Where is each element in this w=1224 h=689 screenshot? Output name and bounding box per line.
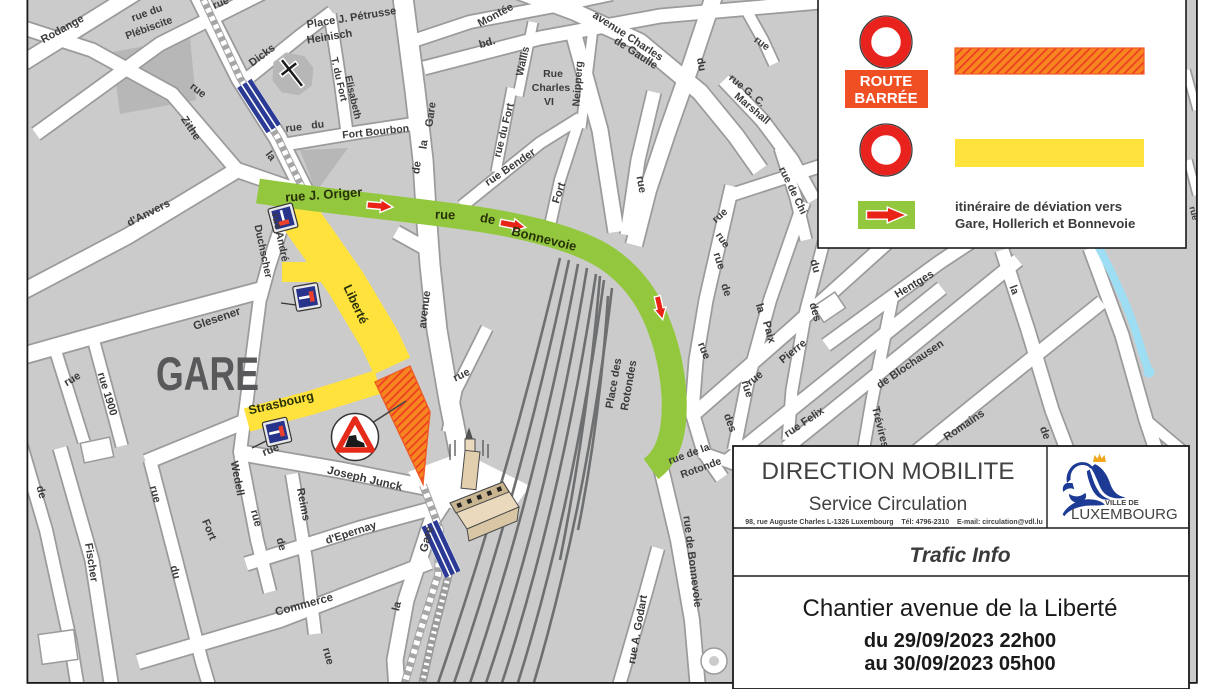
svg-text:rue: rue bbox=[285, 121, 303, 135]
svg-text:Trafic Info: Trafic Info bbox=[909, 544, 1010, 567]
svg-text:98, rue Auguste Charles L-1326: 98, rue Auguste Charles L-1326 Luxembour… bbox=[745, 519, 1043, 526]
svg-text:DIRECTION MOBILITE: DIRECTION MOBILITE bbox=[762, 458, 1015, 485]
svg-text:VI: VI bbox=[544, 96, 554, 108]
svg-text:Service Circulation: Service Circulation bbox=[809, 494, 967, 515]
svg-text:LUXEMBOURG: LUXEMBOURG bbox=[1071, 506, 1178, 523]
svg-text:Charles: Charles bbox=[532, 82, 571, 94]
svg-text:Rue: Rue bbox=[543, 68, 563, 80]
svg-text:Gare, Hollerich et Bonnevoie: Gare, Hollerich et Bonnevoie bbox=[955, 216, 1135, 231]
svg-text:de: de bbox=[479, 210, 497, 227]
svg-text:itinéraire de déviation vers: itinéraire de déviation vers bbox=[955, 199, 1122, 214]
svg-text:Chantier avenue de la Liberté: Chantier avenue de la Liberté bbox=[803, 595, 1118, 622]
svg-text:de: de bbox=[410, 160, 424, 174]
svg-text:du: du bbox=[694, 57, 708, 72]
svg-text:rue: rue bbox=[435, 207, 456, 223]
svg-text:ROUTE: ROUTE bbox=[860, 73, 913, 90]
svg-text:GARE: GARE bbox=[156, 347, 259, 400]
svg-text:du: du bbox=[311, 118, 325, 131]
svg-text:au 30/09/2023 05h00: au 30/09/2023 05h00 bbox=[864, 653, 1055, 675]
svg-text:du 29/09/2023 22h00: du 29/09/2023 22h00 bbox=[864, 630, 1056, 652]
svg-text:BARRÉE: BARRÉE bbox=[854, 90, 917, 107]
